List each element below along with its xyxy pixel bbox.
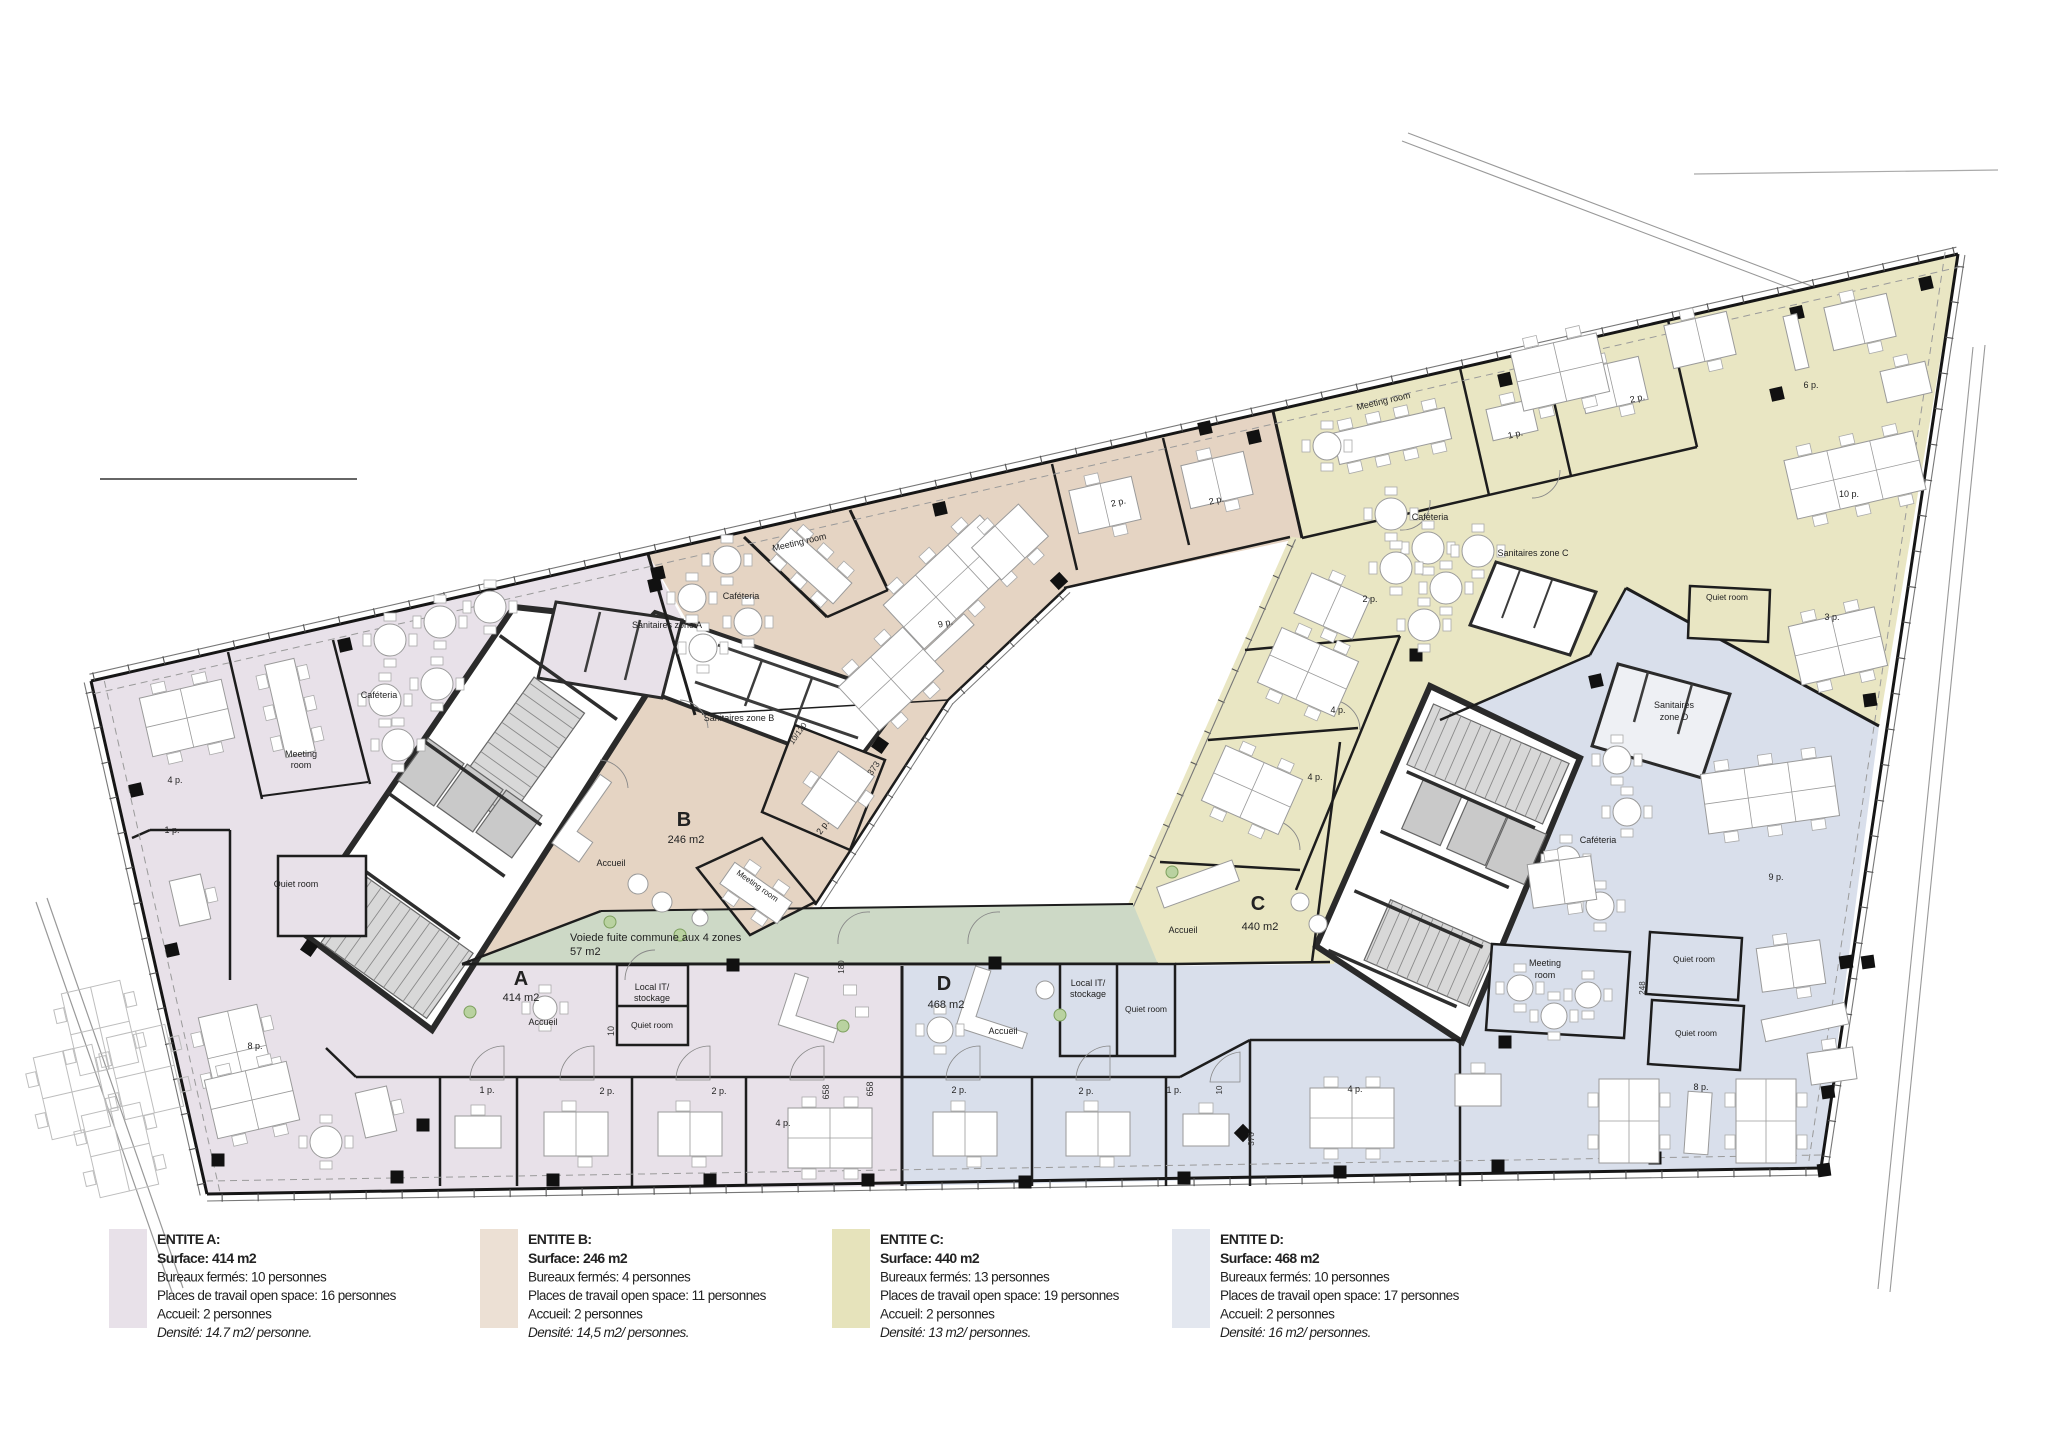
svg-text:Local IT/: Local IT/ (1071, 978, 1106, 988)
svg-text:57 m2: 57 m2 (570, 946, 601, 958)
svg-text:Caféteria: Caféteria (361, 690, 398, 700)
svg-text:Surface: 468 m2: Surface: 468 m2 (1220, 1250, 1320, 1266)
svg-text:Surface: 246 m2: Surface: 246 m2 (528, 1250, 628, 1266)
svg-text:room: room (1535, 970, 1556, 980)
svg-text:Accueil: Accueil (528, 1017, 557, 1027)
svg-text:ENTITE D:: ENTITE D: (1220, 1231, 1284, 1247)
svg-text:ENTITE B:: ENTITE B: (528, 1231, 592, 1247)
svg-text:Surface: 414 m2: Surface: 414 m2 (157, 1250, 257, 1266)
svg-text:468 m2: 468 m2 (928, 999, 965, 1011)
svg-text:A: A (514, 968, 528, 990)
svg-text:Accueil: 2 personnes: Accueil: 2 personnes (880, 1307, 995, 1322)
svg-text:Bureaux fermés: 13 personnes: Bureaux fermés: 13 personnes (880, 1270, 1050, 1285)
svg-text:ENTITE C:: ENTITE C: (880, 1231, 944, 1247)
svg-text:180: 180 (837, 960, 846, 974)
svg-text:Caféteria: Caféteria (723, 591, 760, 601)
svg-text:Accueil: Accueil (596, 858, 625, 868)
svg-text:248: 248 (1638, 981, 1647, 995)
svg-text:Densité: 14,5 m2/ personnes.: Densité: 14,5 m2/ personnes. (528, 1325, 689, 1340)
svg-text:Densité: 16 m2/ personnes.: Densité: 16 m2/ personnes. (1220, 1325, 1371, 1340)
svg-text:1 p.: 1 p. (479, 1085, 494, 1095)
svg-text:2 p.: 2 p. (711, 1086, 726, 1096)
svg-text:4 p.: 4 p. (1330, 705, 1345, 715)
svg-text:Sanitaires zone A: Sanitaires zone A (632, 620, 702, 630)
svg-text:Sanitaires: Sanitaires (1654, 700, 1695, 710)
svg-text:Places de travail open space:: Places de travail open space: 19 personn… (880, 1288, 1120, 1303)
svg-text:Bureaux fermés: 10 personnes: Bureaux fermés: 10 personnes (1220, 1270, 1390, 1285)
svg-text:4 p.: 4 p. (1347, 1084, 1362, 1094)
svg-text:1 p.: 1 p. (1166, 1085, 1181, 1095)
svg-text:Sanitaires zone B: Sanitaires zone B (704, 713, 775, 723)
svg-text:414 m2: 414 m2 (503, 992, 540, 1004)
svg-text:376: 376 (1247, 1132, 1256, 1146)
svg-text:8 p.: 8 p. (247, 1041, 262, 1051)
svg-text:Densité: 13 m2/ personnes.: Densité: 13 m2/ personnes. (880, 1325, 1031, 1340)
svg-text:246 m2: 246 m2 (668, 834, 705, 846)
svg-text:Voiede fuite commune aux 4 zon: Voiede fuite commune aux 4 zones (570, 932, 742, 944)
svg-text:Surface: 440 m2: Surface: 440 m2 (880, 1250, 980, 1266)
svg-text:Quiet room: Quiet room (1706, 592, 1748, 602)
svg-text:Accueil: 2 personnes: Accueil: 2 personnes (528, 1307, 643, 1322)
svg-text:Accueil: 2 personnes: Accueil: 2 personnes (1220, 1307, 1335, 1322)
svg-text:Quiet room: Quiet room (1125, 1004, 1167, 1014)
svg-text:stockage: stockage (1070, 989, 1106, 999)
svg-text:Accueil: 2 personnes: Accueil: 2 personnes (157, 1307, 272, 1322)
svg-text:Places de travail open space:: Places de travail open space: 17 personn… (1220, 1288, 1460, 1303)
svg-text:4 p.: 4 p. (167, 775, 182, 785)
svg-text:Local IT/: Local IT/ (635, 982, 670, 992)
svg-text:10: 10 (1215, 1085, 1224, 1094)
svg-text:2 p.: 2 p. (599, 1086, 614, 1096)
svg-text:2 p.: 2 p. (1078, 1086, 1093, 1096)
svg-text:8 p.: 8 p. (1693, 1082, 1708, 1092)
svg-text:Quiet room: Quiet room (1675, 1028, 1717, 1038)
svg-text:4 p.: 4 p. (775, 1118, 790, 1128)
svg-text:Accueil: Accueil (988, 1026, 1017, 1036)
svg-text:6 p.: 6 p. (1803, 380, 1818, 390)
svg-text:Densité: 14.7 m2/ personne.: Densité: 14.7 m2/ personne. (157, 1325, 312, 1340)
svg-text:B: B (677, 809, 691, 831)
svg-text:Caféteria: Caféteria (1412, 512, 1449, 522)
svg-text:Meeting: Meeting (285, 749, 317, 759)
svg-text:ENTITE A:: ENTITE A: (157, 1231, 220, 1247)
svg-text:C: C (1251, 893, 1265, 915)
svg-text:zone D: zone D (1660, 712, 1689, 722)
svg-text:Bureaux fermés: 4 personnes: Bureaux fermés: 4 personnes (528, 1270, 691, 1285)
svg-text:658: 658 (821, 1084, 831, 1099)
svg-text:Accueil: Accueil (1168, 925, 1197, 935)
svg-text:3 p.: 3 p. (1824, 612, 1839, 622)
svg-text:9 p.: 9 p. (1768, 872, 1783, 882)
svg-text:room: room (291, 760, 312, 770)
svg-text:Quiet room: Quiet room (631, 1020, 673, 1030)
svg-text:10 p.: 10 p. (1839, 489, 1859, 499)
svg-text:658: 658 (865, 1081, 875, 1096)
svg-text:2 p.: 2 p. (951, 1085, 966, 1095)
svg-text:4 p.: 4 p. (1307, 772, 1322, 782)
svg-text:1 p.: 1 p. (164, 825, 179, 835)
svg-text:Quiet room: Quiet room (274, 879, 319, 889)
svg-text:Sanitaires zone C: Sanitaires zone C (1497, 548, 1569, 558)
svg-text:10: 10 (606, 1026, 616, 1036)
svg-text:Bureaux fermés: 10 personnes: Bureaux fermés: 10 personnes (157, 1270, 327, 1285)
svg-text:Places de travail open space:: Places de travail open space: 11 personn… (528, 1288, 767, 1303)
svg-text:2 p.: 2 p. (1362, 594, 1377, 604)
svg-text:Meeting: Meeting (1529, 958, 1561, 968)
svg-text:Caféteria: Caféteria (1580, 835, 1617, 845)
svg-text:D: D (937, 973, 951, 995)
svg-text:440 m2: 440 m2 (1242, 921, 1279, 933)
svg-text:Places de travail open space:: Places de travail open space: 16 personn… (157, 1288, 397, 1303)
svg-text:Quiet room: Quiet room (1673, 954, 1715, 964)
svg-text:stockage: stockage (634, 993, 670, 1003)
